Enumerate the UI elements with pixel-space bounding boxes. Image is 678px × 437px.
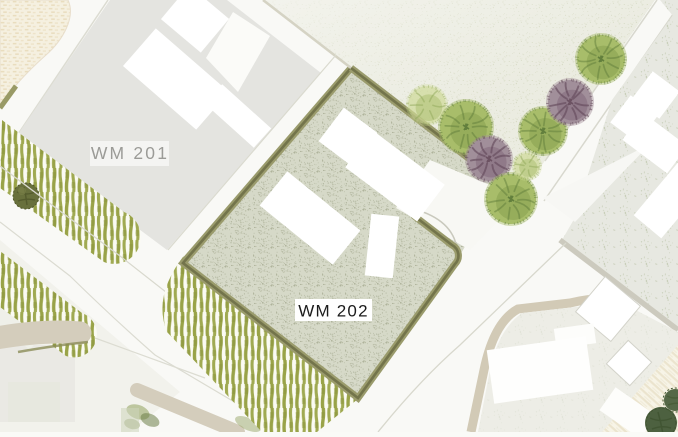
svg-text:WM 201: WM 201 — [91, 143, 169, 163]
svg-text:WM 202: WM 202 — [298, 302, 369, 321]
